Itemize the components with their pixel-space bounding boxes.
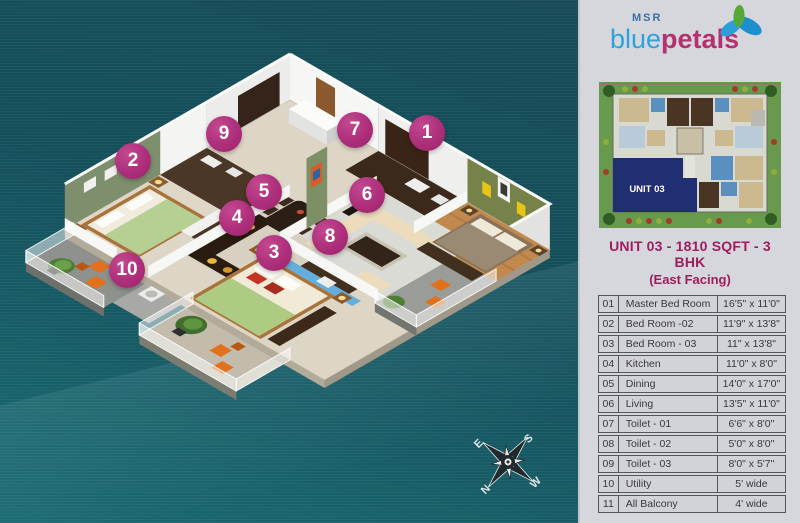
- logo-blue-text: blue: [610, 24, 661, 54]
- table-row: 07Toilet - 016'6" x 8'0": [598, 415, 786, 433]
- room-marker-2: 2: [115, 143, 151, 179]
- compass-west-label: W: [528, 475, 544, 491]
- room-size: 13'5" x 11'0": [718, 395, 786, 413]
- room-table-body: 01Master Bed Room16'5" x 11'0"02Bed Room…: [598, 295, 786, 513]
- room-marker-9: 9: [206, 116, 242, 152]
- table-row: 02Bed Room -0211'9" x 13'8": [598, 315, 786, 333]
- room-number: 01: [598, 295, 619, 313]
- room-marker-6: 6: [349, 177, 385, 213]
- table-row: 11All Balcony4' wide: [598, 495, 786, 513]
- room-name: Toilet - 02: [619, 435, 718, 453]
- unit-title: UNIT 03 - 1810 SQFT - 3 BHK: [594, 238, 786, 270]
- room-number: 11: [598, 495, 619, 513]
- floorplan-scene: 12345678910 E S: [0, 0, 578, 523]
- info-panel: MSR bluepetals: [578, 0, 800, 523]
- room-size: 14'0" x 17'0": [718, 375, 786, 393]
- room-name: Toilet - 01: [619, 415, 718, 433]
- room-size: 11'0" x 8'0": [718, 355, 786, 373]
- room-name: Utility: [619, 475, 718, 493]
- table-row: 05Dining14'0" x 17'0": [598, 375, 786, 393]
- room-number: 10: [598, 475, 619, 493]
- room-number: 05: [598, 375, 619, 393]
- unit-03-map-label: UNIT 03: [629, 184, 664, 195]
- room-name: Toilet - 03: [619, 455, 718, 473]
- table-row: 10Utility5' wide: [598, 475, 786, 493]
- room-dimension-table: 01Master Bed Room16'5" x 11'0"02Bed Room…: [598, 293, 786, 515]
- logo-msr-text: MSR: [632, 12, 662, 24]
- room-marker-5: 5: [246, 174, 282, 210]
- room-marker-3: 3: [256, 235, 292, 271]
- room-marker-7: 7: [337, 112, 373, 148]
- room-marker-10: 10: [109, 252, 145, 288]
- brand-logo: MSR bluepetals: [610, 10, 770, 68]
- table-row: 01Master Bed Room16'5" x 11'0": [598, 295, 786, 313]
- room-number: 04: [598, 355, 619, 373]
- room-size: 6'6" x 8'0": [718, 415, 786, 433]
- compass-rose-icon: E S N W: [452, 422, 564, 522]
- table-row: 08Toilet - 025'0" x 8'0": [598, 435, 786, 453]
- room-number: 07: [598, 415, 619, 433]
- room-size: 16'5" x 11'0": [718, 295, 786, 313]
- room-size: 11" x 13'8": [718, 335, 786, 353]
- room-name: Bed Room - 03: [619, 335, 718, 353]
- room-marker-1: 1: [409, 115, 445, 151]
- compass-east-label: E: [472, 437, 486, 451]
- room-number: 06: [598, 395, 619, 413]
- room-size: 8'0" x 5'7": [718, 455, 786, 473]
- room-name: Kitchen: [619, 355, 718, 373]
- room-name: Living: [619, 395, 718, 413]
- room-size: 5'0" x 8'0": [718, 435, 786, 453]
- leaf-icon: [714, 4, 766, 38]
- table-row: 03Bed Room - 0311" x 13'8": [598, 335, 786, 353]
- brochure-page: 12345678910 E S: [0, 0, 800, 523]
- room-size: 4' wide: [718, 495, 786, 513]
- room-number: 03: [598, 335, 619, 353]
- room-name: All Balcony: [619, 495, 718, 513]
- room-number: 02: [598, 315, 619, 333]
- room-name: Bed Room -02: [619, 315, 718, 333]
- room-number: 09: [598, 455, 619, 473]
- room-name: Master Bed Room: [619, 295, 718, 313]
- room-size: 5' wide: [718, 475, 786, 493]
- room-size: 11'9" x 13'8": [718, 315, 786, 333]
- table-row: 06Living13'5" x 11'0": [598, 395, 786, 413]
- table-row: 09Toilet - 038'0" x 5'7": [598, 455, 786, 473]
- unit-subtitle: (East Facing): [594, 272, 786, 287]
- room-number: 08: [598, 435, 619, 453]
- room-marker-8: 8: [312, 219, 348, 255]
- table-row: 04Kitchen11'0" x 8'0": [598, 355, 786, 373]
- room-marker-4: 4: [219, 200, 255, 236]
- site-plan-map: UNIT 03: [599, 82, 781, 228]
- room-name: Dining: [619, 375, 718, 393]
